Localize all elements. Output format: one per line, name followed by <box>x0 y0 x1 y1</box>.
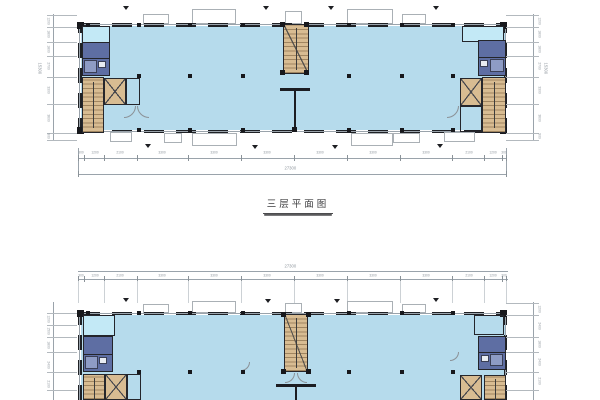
stair-rail <box>296 318 297 368</box>
toilet-fixture <box>99 357 107 364</box>
elevator-shaft <box>460 375 482 400</box>
column-post <box>281 312 286 317</box>
dim-total: 27300 <box>285 265 297 269</box>
dim-segment-labels: 3001200210033003300330033003300330021001… <box>0 273 600 279</box>
dim-line <box>78 279 508 280</box>
wall-left <box>78 312 82 400</box>
stair-rail <box>94 378 95 400</box>
axis-marker-icon <box>334 299 340 303</box>
washroom-counter <box>85 356 98 369</box>
axis-marker-icon <box>123 298 129 302</box>
axis-marker-icon <box>433 298 439 302</box>
corner-room <box>474 315 504 335</box>
washroom-counter <box>490 354 503 366</box>
corner-room <box>83 315 115 336</box>
washroom-partition <box>84 354 112 355</box>
column-grid-row <box>137 370 141 374</box>
toilet-fixture <box>481 355 489 362</box>
dim-segment-labels: 12001500180024002100 <box>45 0 51 400</box>
service-room <box>127 374 141 400</box>
floor-plan-lower: 27300 3001200210033003300330033003300330… <box>0 0 600 400</box>
elevator-shaft <box>105 374 127 400</box>
partition-web <box>295 386 297 400</box>
dim-segment-labels: 12002400180024002100 <box>536 0 542 400</box>
column-grid-row <box>86 311 90 315</box>
dim-ticks <box>47 313 77 314</box>
dim-line <box>533 302 534 400</box>
washroom-partition <box>479 352 505 353</box>
dim-drop-lines <box>78 281 79 303</box>
drawing-canvas: 3001200210033003300330033003300330021001… <box>0 0 600 400</box>
dim-ticks <box>506 303 539 304</box>
dim-line <box>53 302 54 400</box>
stair-rail <box>495 379 496 400</box>
axis-marker-icon <box>265 299 271 303</box>
